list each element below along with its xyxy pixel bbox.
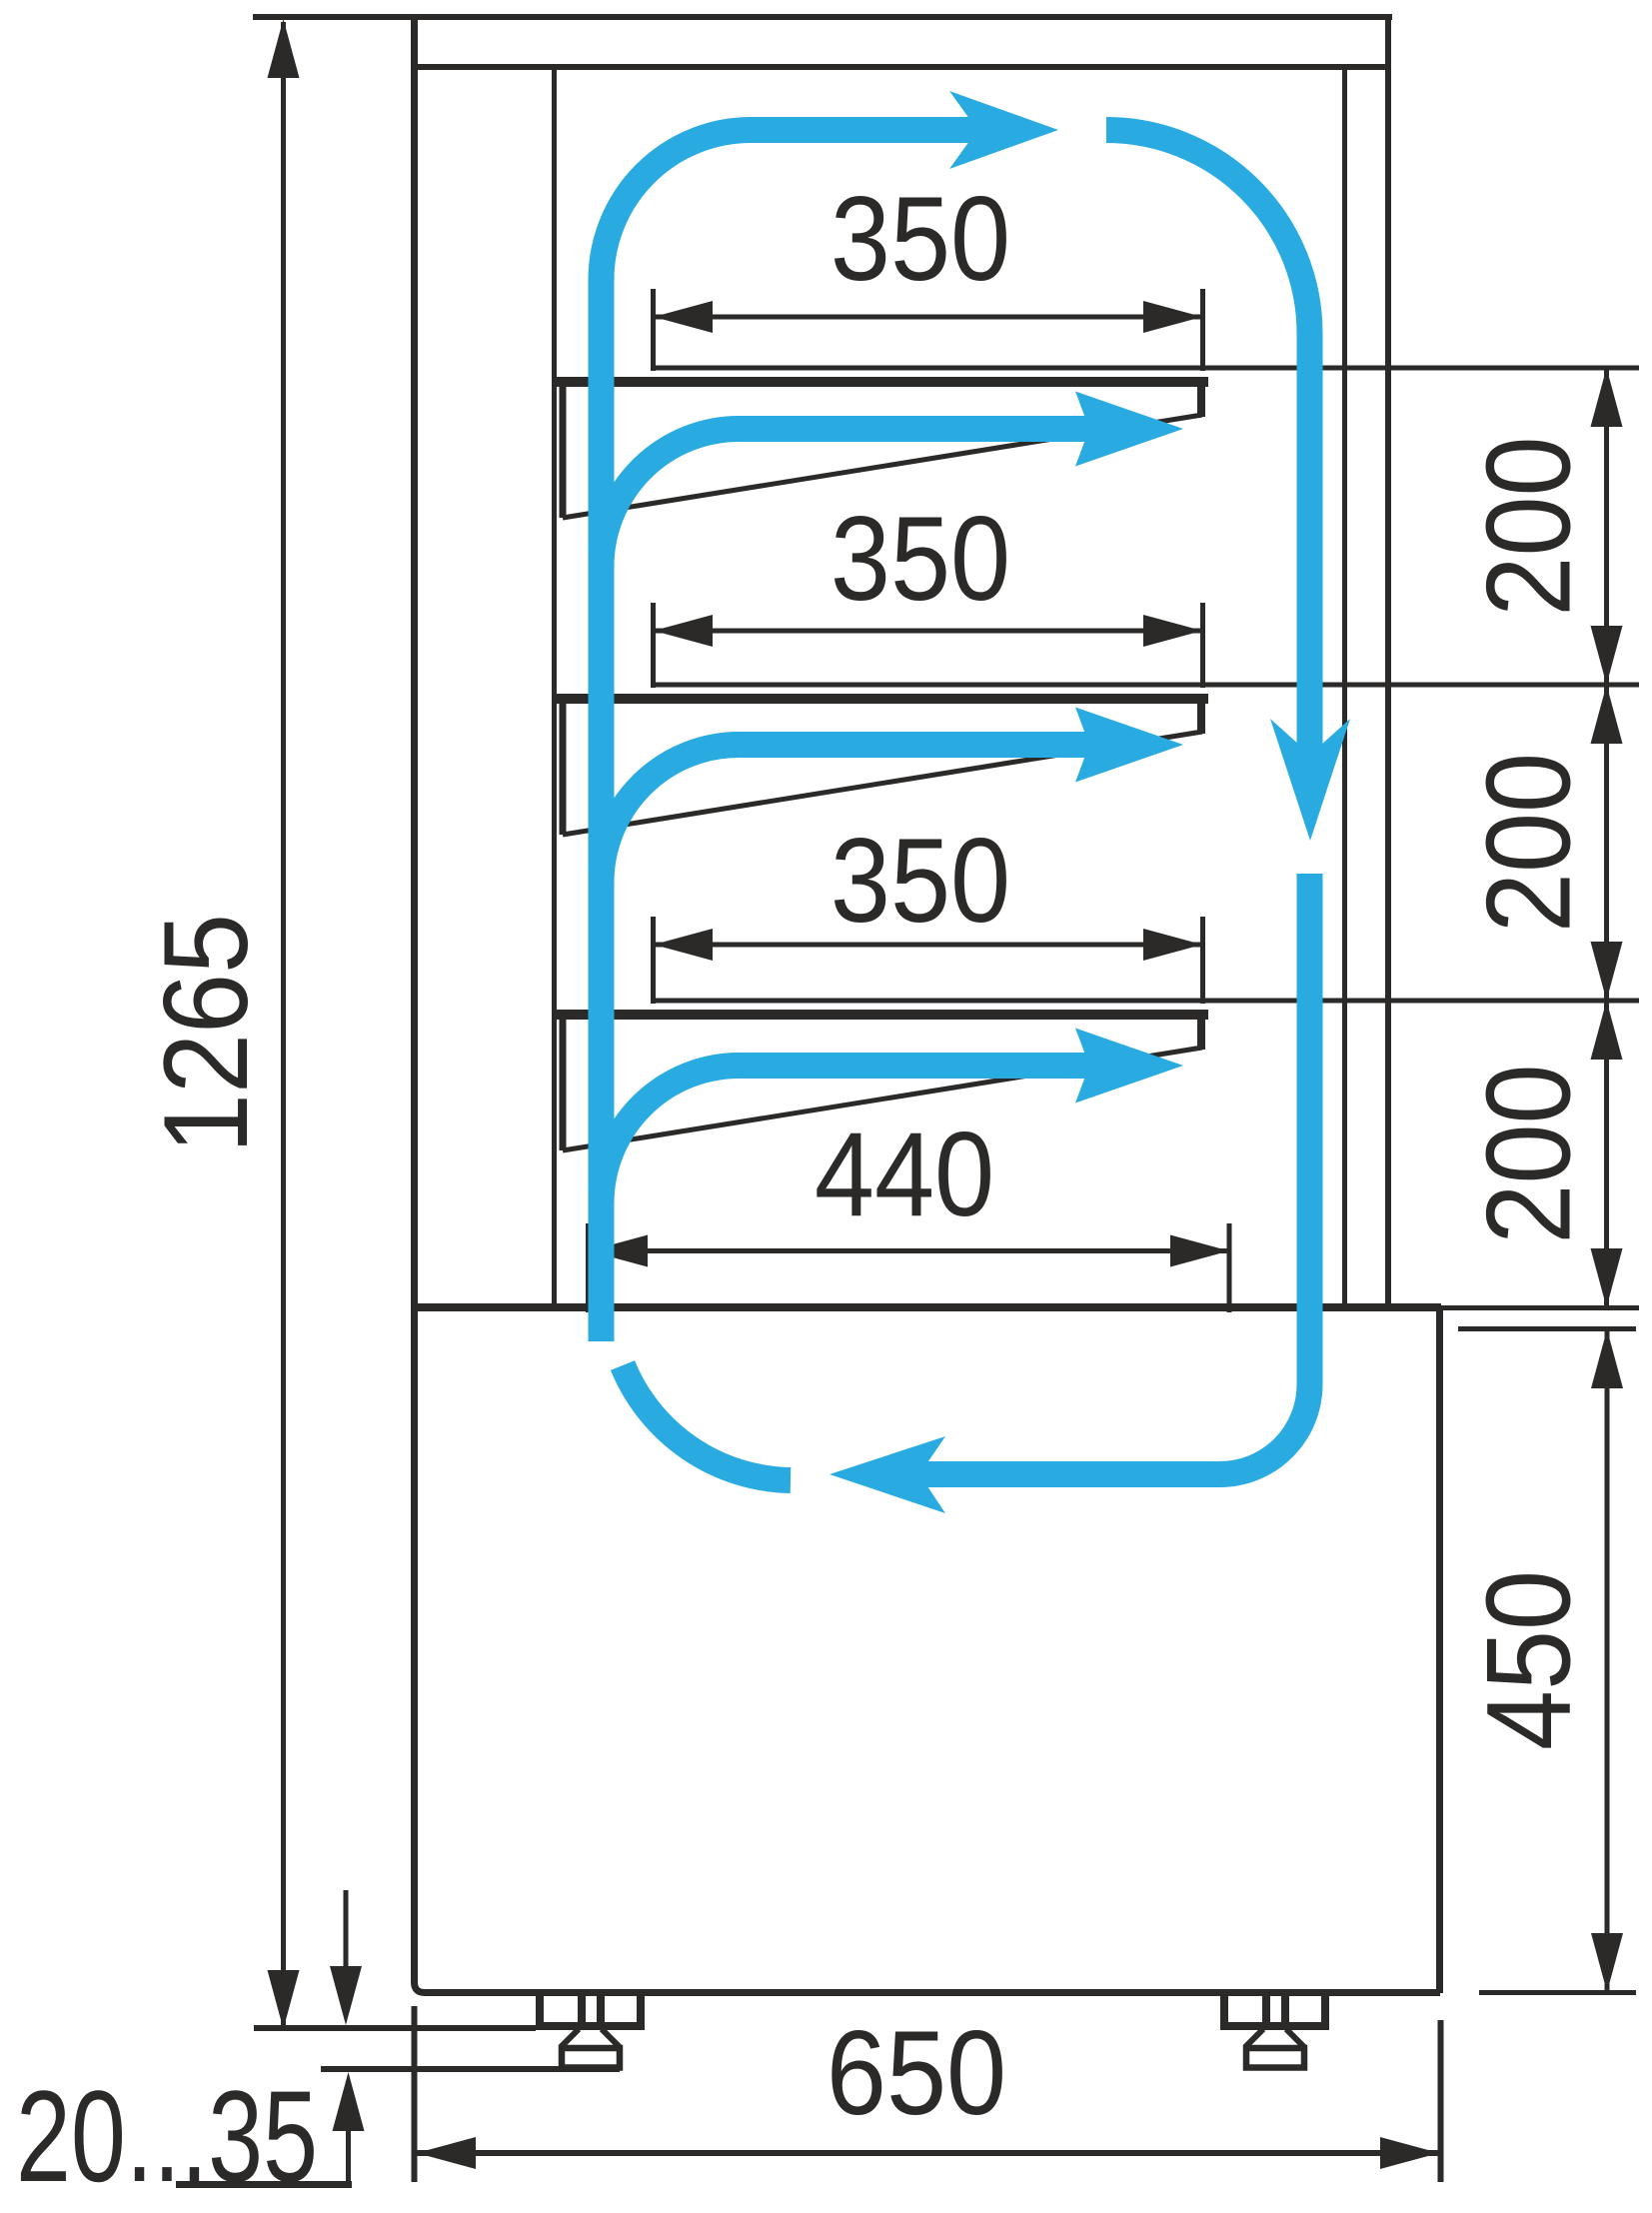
svg-text:350: 350 [830,815,1010,948]
svg-text:200: 200 [1462,753,1595,933]
svg-text:200: 200 [1462,436,1595,616]
svg-text:200: 200 [1462,1064,1595,1243]
svg-text:1265: 1265 [140,914,273,1153]
svg-text:350: 350 [830,493,1010,626]
svg-text:450: 450 [1462,1570,1595,1750]
svg-text:350: 350 [830,173,1010,306]
svg-text:440: 440 [815,1108,994,1241]
svg-text:650: 650 [826,2007,1006,2140]
